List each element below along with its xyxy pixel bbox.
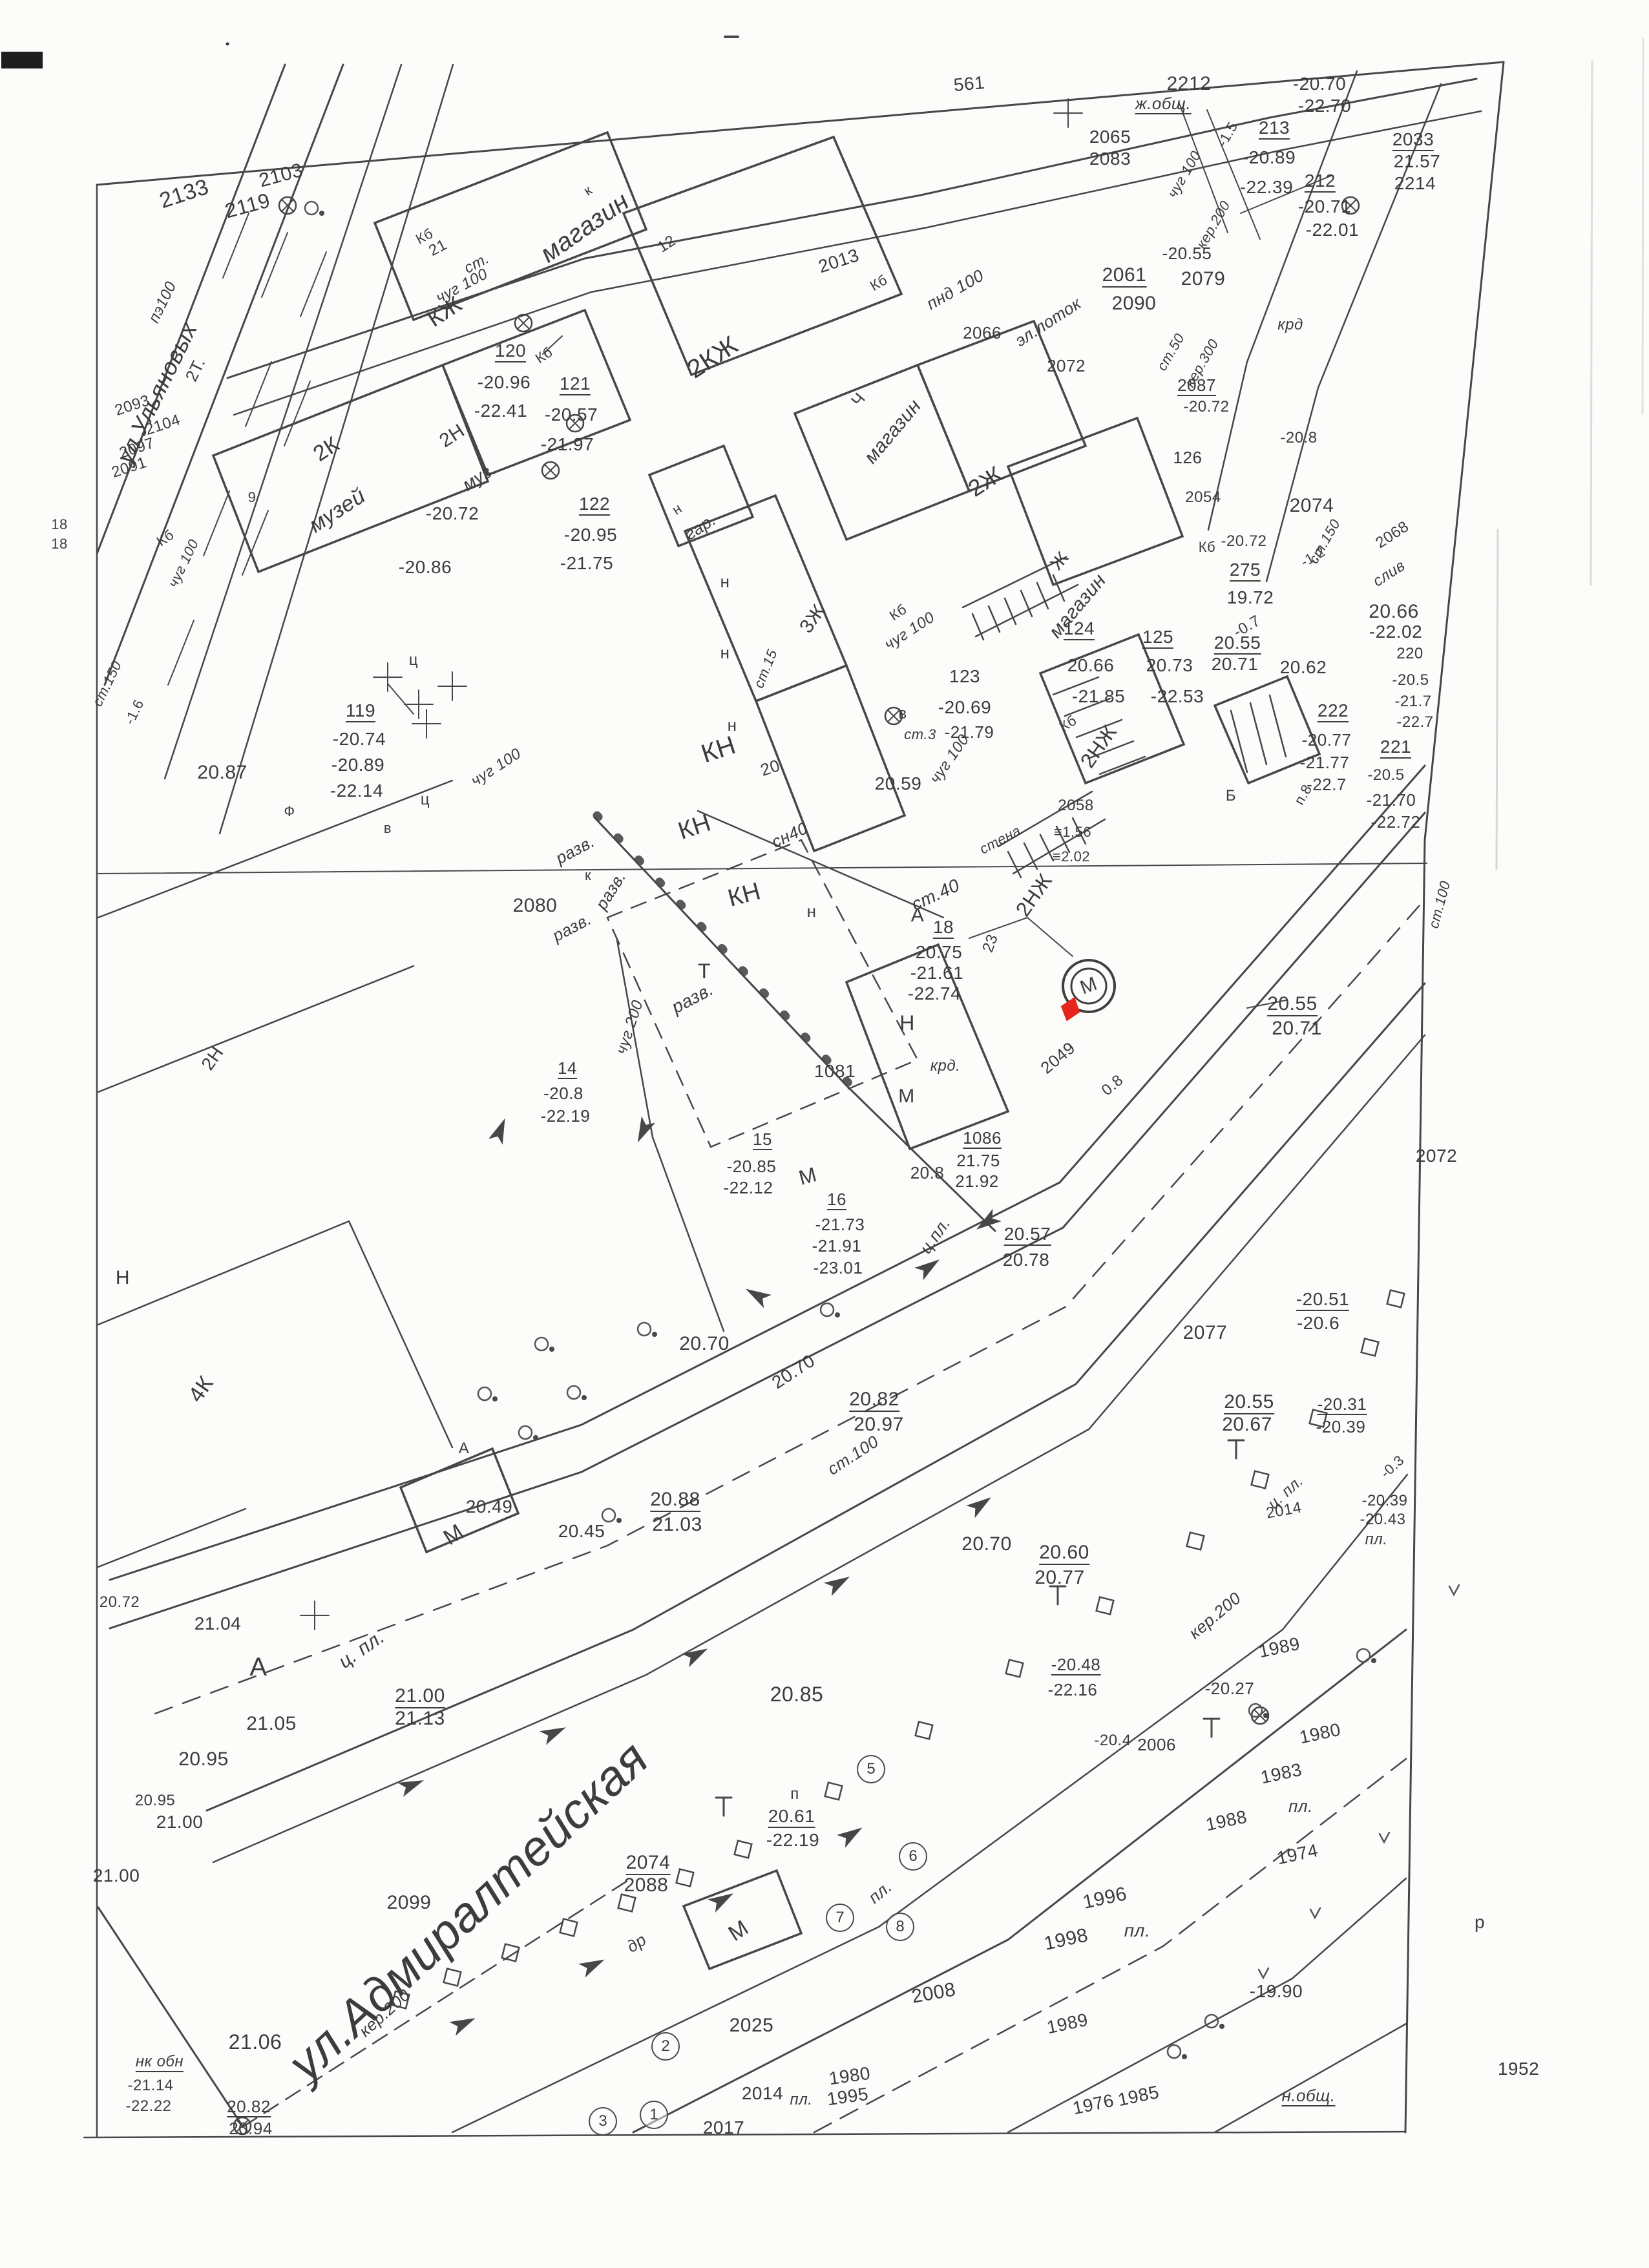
map-label: -21.85 <box>1072 688 1125 706</box>
map-label: разв. <box>553 833 597 867</box>
map-label: крд. <box>930 1058 961 1074</box>
map-label: эл.лоток <box>1013 295 1084 350</box>
map-label: 1988 <box>1204 1808 1249 1834</box>
map-label: 1995 <box>826 2085 870 2109</box>
map-label: 275 <box>1230 561 1261 582</box>
map-label: 2072 <box>1416 1147 1457 1165</box>
map-label: 221 <box>1380 738 1411 759</box>
map-label: КЖ <box>423 292 466 331</box>
map-label: 20.66 <box>1369 602 1419 622</box>
map-label: ц. пл. <box>335 1627 388 1672</box>
map-label: Н <box>116 1268 130 1288</box>
map-label: ст.3 <box>904 728 936 742</box>
map-label: сн40 <box>769 819 810 850</box>
map-label: Кб <box>868 273 890 293</box>
map-label: чуг 100 <box>468 746 524 789</box>
map-label: ≡1.56 <box>1054 825 1091 839</box>
map-label: 222 <box>1318 702 1349 722</box>
map-label: 124 <box>1064 620 1095 640</box>
map-label: -22.19 <box>766 1831 819 1849</box>
map-label: -19.90 <box>1250 1982 1303 2000</box>
map-label: 2008 <box>910 1980 958 2006</box>
map-label: 20.85 <box>770 1684 824 1705</box>
map-label: н.общ. <box>1282 2087 1336 2106</box>
map-label: Б <box>1226 788 1236 804</box>
map-label: -20.72 <box>1221 534 1266 549</box>
map-label: разв. <box>669 980 717 1017</box>
map-label: 1086 <box>963 1129 1002 1149</box>
map-label: 2017 <box>703 2119 744 2137</box>
map-label: -20.8 <box>543 1085 583 1102</box>
map-label: магазин <box>861 396 925 467</box>
map-label: Ж <box>1047 549 1072 573</box>
map-label: -20.4 <box>1094 1733 1131 1748</box>
map-label: -1.5 <box>1215 120 1240 149</box>
map-label: пл. <box>1365 1532 1388 1548</box>
map-label: 21.92 <box>955 1173 999 1190</box>
map-label: 2014 <box>742 2084 783 2103</box>
map-label: муз. <box>459 459 499 494</box>
map-label: 19.72 <box>1227 589 1274 607</box>
map-label: 20.95 <box>135 1793 176 1809</box>
map-label: в <box>898 706 907 722</box>
map-label: -20.89 <box>331 756 384 774</box>
map-label: -22.53 <box>1151 688 1204 706</box>
map-label: -22.16 <box>1048 1681 1098 1698</box>
map-label: пэ100 <box>146 279 179 325</box>
circled-point-number: 1 <box>640 2101 668 2129</box>
map-label: -20.71 <box>1298 198 1351 216</box>
map-label: 2091 <box>110 455 149 481</box>
map-label: -22.22 <box>125 2099 171 2114</box>
map-label: 2133 <box>157 176 211 212</box>
map-label: -22.41 <box>474 402 527 420</box>
map-label: -20.70 <box>1293 75 1346 93</box>
map-label: ст.15 <box>751 647 780 690</box>
map-label: 2066 <box>963 324 1002 341</box>
map-label: -20.6 <box>1297 1314 1339 1332</box>
map-label: п <box>790 1787 799 1802</box>
map-label: А <box>911 906 925 925</box>
map-label: 20.59 <box>875 775 922 793</box>
map-label: 20.55 <box>1214 634 1261 655</box>
map-label: 18 <box>51 518 67 532</box>
map-label: разв. <box>593 868 629 912</box>
map-label: -21.79 <box>945 724 994 740</box>
map-label: 20.61 <box>768 1807 815 1828</box>
map-label: -22.70 <box>1298 97 1351 115</box>
map-label: 120 <box>495 342 526 362</box>
map-label: пл. <box>790 2092 813 2108</box>
map-label: 1983 <box>1259 1761 1304 1787</box>
map-label: гар. <box>682 510 719 542</box>
map-label: чуг 100 <box>166 537 202 589</box>
map-label: 2049 <box>1038 1039 1078 1076</box>
map-label: -20.89 <box>1243 149 1296 167</box>
map-label: в <box>384 821 392 835</box>
map-label: М <box>797 1164 819 1188</box>
map-label: -20.43 <box>1360 1512 1405 1528</box>
map-label: ц <box>409 653 418 668</box>
map-label: -20.96 <box>478 373 530 392</box>
map-label: -20.77 <box>1302 731 1352 748</box>
scanned-survey-map-sheet: 213321192103561ул.Ульяновых2Т.пэ10020932… <box>0 0 1649 2268</box>
map-label: ст.100 <box>824 1433 881 1478</box>
map-label: -22.01 <box>1306 221 1359 239</box>
map-label: 20.77 <box>1035 1568 1085 1588</box>
circled-point-number: 6 <box>899 1842 927 1871</box>
map-label: др <box>624 1931 649 1955</box>
map-label: М <box>898 1087 915 1106</box>
map-label: -21.14 <box>127 2078 173 2094</box>
map-label: 20.60 <box>1039 1543 1089 1565</box>
map-label: -21.91 <box>812 1237 862 1254</box>
map-label: 3Ж <box>797 602 830 636</box>
circled-point-number: 7 <box>826 1904 854 1932</box>
map-label: 2068 <box>1373 519 1412 551</box>
map-label: н <box>807 903 817 919</box>
map-label: крд <box>1277 317 1303 333</box>
map-label: 20.82 <box>227 2098 271 2117</box>
map-label: пл. <box>1288 1798 1313 1814</box>
map-label: М <box>725 1916 753 1945</box>
map-label: 16 <box>827 1191 846 1210</box>
map-label: 2013 <box>816 246 861 276</box>
map-label: 20.70 <box>961 1535 1012 1554</box>
map-label: 21.00 <box>395 1686 445 1708</box>
map-label: 20.71 <box>1272 1019 1322 1038</box>
map-label: Кб <box>1057 713 1079 735</box>
map-label: 21.00 <box>156 1813 204 1831</box>
map-label: 2К <box>310 433 343 465</box>
map-label: 20.8 <box>910 1164 945 1181</box>
map-label-layer: 213321192103561ул.Ульяновых2Т.пэ10020932… <box>0 0 1649 2268</box>
map-label: -22.12 <box>724 1179 773 1196</box>
map-label: -23.01 <box>814 1259 863 1276</box>
map-label: 2074 <box>626 1853 671 1875</box>
map-label: 2014 <box>1265 1500 1303 1521</box>
map-label: 2НЖ <box>1077 721 1120 771</box>
map-label: чуг 100 <box>1166 149 1204 200</box>
map-label: 15 <box>753 1131 772 1150</box>
map-label: музей <box>306 485 370 537</box>
map-label: 20.55 <box>1224 1392 1274 1414</box>
map-label: 1996 <box>1081 1884 1128 1913</box>
map-label: -22.74 <box>908 985 961 1003</box>
map-label: КН <box>726 879 764 911</box>
map-label: 20.55 <box>1267 994 1318 1016</box>
map-label: -20.85 <box>727 1158 777 1175</box>
circled-m-symbol: М <box>1078 974 1100 998</box>
map-label: 20.67 <box>1222 1415 1272 1434</box>
map-label: 2033 <box>1392 131 1434 151</box>
map-label: -22.19 <box>541 1108 591 1124</box>
map-label: 21.05 <box>246 1714 297 1734</box>
map-label: 20.45 <box>558 1522 605 1540</box>
map-label: -20.27 <box>1205 1680 1255 1697</box>
map-label: 2058 <box>1058 798 1093 814</box>
circled-point-number: 5 <box>857 1755 885 1783</box>
map-label: Н <box>899 1013 915 1033</box>
map-label: 121 <box>560 375 591 395</box>
map-label: 20.95 <box>178 1750 229 1769</box>
map-label: 123 <box>949 667 980 686</box>
map-label: к <box>582 183 595 198</box>
map-label: ц.пл. <box>917 1215 953 1257</box>
map-label: -20.69 <box>938 698 991 717</box>
map-label: Кб <box>1199 540 1215 554</box>
map-label: 2099 <box>387 1893 432 1913</box>
circled-point-number: 2 <box>651 2032 680 2061</box>
map-label: -22.7 <box>1396 715 1433 730</box>
map-label: 20.97 <box>854 1415 904 1434</box>
map-label: кер.200 <box>1186 1589 1244 1641</box>
map-label: -20.48 <box>1051 1656 1101 1675</box>
map-label: 1985 <box>1117 2083 1161 2110</box>
map-label: 21.04 <box>194 1615 242 1633</box>
map-label: -21.75 <box>560 554 613 572</box>
map-label: 2103 <box>257 161 305 191</box>
map-label: р <box>1475 1913 1485 1931</box>
map-label: -20.39 <box>1316 1418 1366 1435</box>
map-label: 2079 <box>1181 269 1226 289</box>
map-label: 20.94 <box>229 2120 273 2137</box>
map-label: ц <box>421 792 430 808</box>
map-label: -20.57 <box>545 406 598 424</box>
map-label: нк обн <box>136 2054 184 2072</box>
map-label: 2214 <box>1394 174 1436 193</box>
map-label: 20.70 <box>679 1334 730 1354</box>
map-label: 2065 <box>1089 128 1131 146</box>
map-label: 20.75 <box>916 943 963 961</box>
map-label: к <box>585 868 591 883</box>
map-label: ст.100 <box>1427 879 1453 930</box>
map-label: Ч <box>848 390 868 409</box>
map-label: Кб <box>887 602 909 624</box>
map-label: 2025 <box>730 2016 774 2035</box>
map-label: стена <box>978 823 1024 857</box>
map-label: ст.150 <box>90 659 125 709</box>
map-label: -20.95 <box>564 526 617 544</box>
map-label: 2072 <box>1047 357 1086 374</box>
map-label: 212 <box>1305 172 1336 193</box>
map-label: -1.6 <box>122 697 146 727</box>
map-label: 23 <box>980 932 1001 954</box>
map-label: 20.71 <box>1212 655 1259 673</box>
map-label: 20.88 <box>650 1490 700 1512</box>
map-label: -20.5 <box>1367 768 1404 783</box>
map-label: ≡2.02 <box>1053 850 1090 864</box>
map-label: -21.77 <box>1300 754 1350 771</box>
map-label: 14 <box>558 1060 577 1079</box>
map-label: 2Ж <box>964 462 1006 501</box>
map-label: -22.02 <box>1369 623 1422 641</box>
map-label: 20.57 <box>1004 1225 1051 1246</box>
map-label: пл. <box>865 1878 895 1906</box>
map-label: -20.39 <box>1361 1493 1407 1509</box>
map-label: -20.8 <box>1280 430 1317 446</box>
map-label: Кб <box>154 527 176 549</box>
map-label: 561 <box>953 74 985 94</box>
map-label: -20.51 <box>1296 1290 1349 1311</box>
map-label: Кб <box>533 345 555 366</box>
map-label: 1998 <box>1042 1926 1089 1954</box>
map-label: -0.3 <box>1378 1453 1407 1480</box>
map-label: 20.73 <box>1146 656 1193 675</box>
map-label: -22.14 <box>330 782 383 800</box>
map-label: слив <box>1371 558 1408 589</box>
map-label: 20.78 <box>1003 1251 1050 1269</box>
map-label: М <box>440 1520 468 1549</box>
map-label: -21.61 <box>910 964 963 982</box>
map-label: пнд 100 <box>923 266 986 312</box>
map-label: 125 <box>1142 628 1173 649</box>
map-label: -22.72 <box>1371 814 1421 830</box>
map-label: 20 <box>759 757 782 779</box>
map-label: 2080 <box>513 896 558 916</box>
map-label: 20.49 <box>466 1498 513 1516</box>
map-label: 2087 <box>1177 377 1216 396</box>
map-label: 20.82 <box>849 1390 899 1412</box>
map-label: -20.72 <box>426 505 479 523</box>
map-label: Т <box>698 961 711 982</box>
map-label: Ф <box>284 804 295 819</box>
circled-point-number: 3 <box>589 2107 617 2136</box>
map-label: 1974 <box>1276 1842 1320 1868</box>
map-label: 119 <box>346 702 375 722</box>
map-label: А <box>459 1441 470 1456</box>
street-name-admiralteyskaya: ул.Адмиралтейская <box>280 1733 657 2090</box>
map-label: н <box>720 573 730 590</box>
map-label: 2054 <box>1185 490 1221 505</box>
map-label: н <box>670 501 685 517</box>
map-label: 21.06 <box>229 2032 282 2052</box>
map-label: 2119 <box>223 189 273 221</box>
map-label: 18 <box>933 918 954 939</box>
map-label: 20.72 <box>100 1595 140 1610</box>
map-label: -21.7 <box>1394 694 1431 709</box>
map-label: ст.50 <box>1155 331 1187 373</box>
map-label: 122 <box>579 495 610 516</box>
map-label: 2НЖ <box>1012 870 1055 919</box>
map-label: -20.31 <box>1318 1396 1367 1415</box>
map-label: 2074 <box>1290 496 1334 516</box>
map-label: 21.00 <box>93 1867 140 1885</box>
map-label: 2077 <box>1183 1323 1228 1343</box>
map-label: кер.200 <box>1194 198 1233 251</box>
map-label: 20.66 <box>1067 656 1115 675</box>
map-label: -20.86 <box>399 558 452 576</box>
map-label: 0.8 <box>1099 1073 1126 1099</box>
map-label: -22.39 <box>1240 178 1293 196</box>
map-label: 2006 <box>1137 1736 1176 1753</box>
map-label: 1952 <box>1498 2060 1539 2078</box>
map-label: 2Н <box>198 1044 227 1073</box>
map-label: 213 <box>1259 119 1290 140</box>
map-label: 220 <box>1396 646 1423 662</box>
map-label: 2090 <box>1112 294 1157 313</box>
map-label: -21.70 <box>1367 792 1416 808</box>
map-label: 12 <box>655 233 678 255</box>
map-label: 20.87 <box>197 763 247 782</box>
map-label: 9 <box>248 490 257 505</box>
map-label: 1976 <box>1071 2092 1116 2118</box>
map-label: КН <box>698 732 739 767</box>
map-label: -21.73 <box>815 1216 865 1233</box>
map-label: 1989 <box>1045 2011 1090 2037</box>
map-label: 1081 <box>814 1062 856 1080</box>
map-label: 126 <box>1173 449 1203 466</box>
map-label: 2083 <box>1089 150 1131 168</box>
map-label: КН <box>675 810 714 844</box>
map-label: 20.70 <box>769 1351 818 1392</box>
map-label: 2088 <box>624 1876 669 1895</box>
map-label: 4К <box>185 1372 218 1406</box>
map-label: 21.57 <box>1394 152 1441 171</box>
map-label: 21.75 <box>956 1152 1000 1169</box>
map-label: 21.03 <box>652 1515 702 1535</box>
map-label: 21.13 <box>395 1709 445 1728</box>
map-label: А <box>249 1654 267 1680</box>
map-label: чуг 200 <box>614 998 646 1056</box>
map-label: -21.97 <box>541 436 594 454</box>
map-label: -20.72 <box>1183 399 1229 415</box>
map-label: пл. <box>1124 1922 1150 1940</box>
map-label: 20.62 <box>1280 658 1327 677</box>
map-label: 1989 <box>1257 1635 1302 1661</box>
map-label: 1980 <box>1298 1721 1343 1747</box>
map-label: 18 <box>51 537 67 551</box>
map-label: ж.общ. <box>1135 95 1192 114</box>
building-label-magazin: магазин <box>536 188 633 268</box>
map-label: -20.5 <box>1392 673 1429 688</box>
map-label: -20.74 <box>333 730 386 748</box>
map-label: 2КЖ <box>683 331 742 383</box>
map-label: 2Н <box>436 421 468 452</box>
map-label: 2061 <box>1102 266 1147 288</box>
map-label: н <box>720 644 730 661</box>
circled-point-number: 8 <box>886 1913 914 1941</box>
map-label: 2212 <box>1167 74 1212 94</box>
